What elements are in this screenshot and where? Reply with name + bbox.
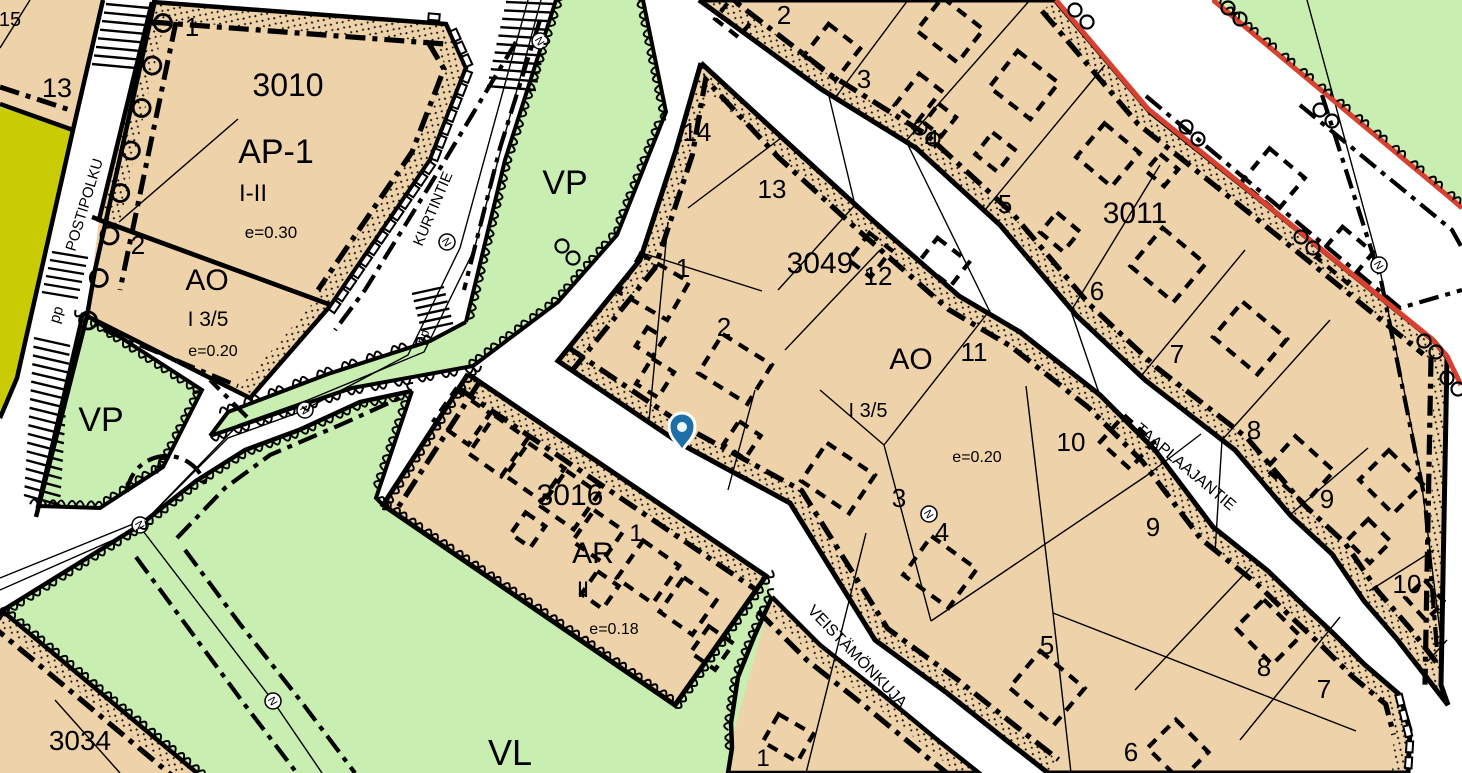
svg-text:3011: 3011 — [1103, 197, 1168, 230]
svg-text:e=0.20: e=0.20 — [188, 343, 237, 360]
svg-text:AP-1: AP-1 — [238, 133, 314, 171]
svg-text:I 3/5: I 3/5 — [849, 400, 888, 422]
svg-text:3034: 3034 — [49, 725, 111, 756]
svg-text:4: 4 — [935, 517, 949, 547]
svg-text:6: 6 — [1090, 276, 1104, 306]
svg-text:9: 9 — [1146, 512, 1160, 542]
svg-text:VP: VP — [542, 164, 587, 202]
svg-text:1: 1 — [756, 745, 769, 772]
svg-text:3016: 3016 — [537, 479, 604, 512]
svg-text:7: 7 — [1170, 339, 1184, 369]
svg-text:13: 13 — [42, 73, 72, 103]
svg-text:10: 10 — [1057, 427, 1086, 457]
svg-text:3049: 3049 — [787, 247, 854, 280]
svg-text:3: 3 — [857, 64, 871, 94]
svg-text:1: 1 — [185, 12, 199, 42]
svg-text:14: 14 — [683, 117, 712, 147]
svg-text:12: 12 — [864, 261, 893, 291]
svg-text:2: 2 — [131, 230, 145, 260]
svg-text:15: 15 — [0, 9, 21, 31]
svg-text:11: 11 — [961, 337, 988, 367]
svg-text:8: 8 — [1257, 652, 1271, 682]
svg-text:1: 1 — [676, 253, 690, 283]
svg-text:e=0.18: e=0.18 — [589, 621, 638, 638]
svg-text:AO: AO — [185, 264, 228, 297]
svg-text:2: 2 — [717, 312, 731, 342]
svg-text:I 3/5: I 3/5 — [188, 308, 229, 331]
svg-text:10: 10 — [1393, 569, 1422, 599]
svg-text:e=0.30: e=0.30 — [245, 223, 297, 242]
svg-text:2: 2 — [777, 0, 791, 30]
svg-text:AO: AO — [889, 343, 932, 376]
svg-text:7: 7 — [1317, 674, 1331, 704]
svg-text:AR: AR — [572, 537, 614, 570]
svg-text:4: 4 — [925, 124, 939, 154]
svg-text:8: 8 — [1247, 415, 1261, 445]
svg-text:13: 13 — [758, 174, 787, 204]
svg-text:I-II: I-II — [239, 180, 267, 207]
svg-text:VL: VL — [488, 732, 532, 773]
svg-text:e=0.20: e=0.20 — [952, 449, 1001, 466]
svg-text:3: 3 — [892, 483, 906, 513]
svg-text:1: 1 — [629, 520, 642, 547]
svg-text:6: 6 — [1124, 737, 1138, 767]
svg-text:II: II — [577, 577, 589, 602]
svg-text:3010: 3010 — [252, 67, 323, 103]
svg-text:5: 5 — [1040, 630, 1054, 660]
svg-text:9: 9 — [1320, 484, 1334, 514]
svg-text:VP: VP — [78, 401, 123, 439]
svg-text:5: 5 — [998, 189, 1012, 219]
